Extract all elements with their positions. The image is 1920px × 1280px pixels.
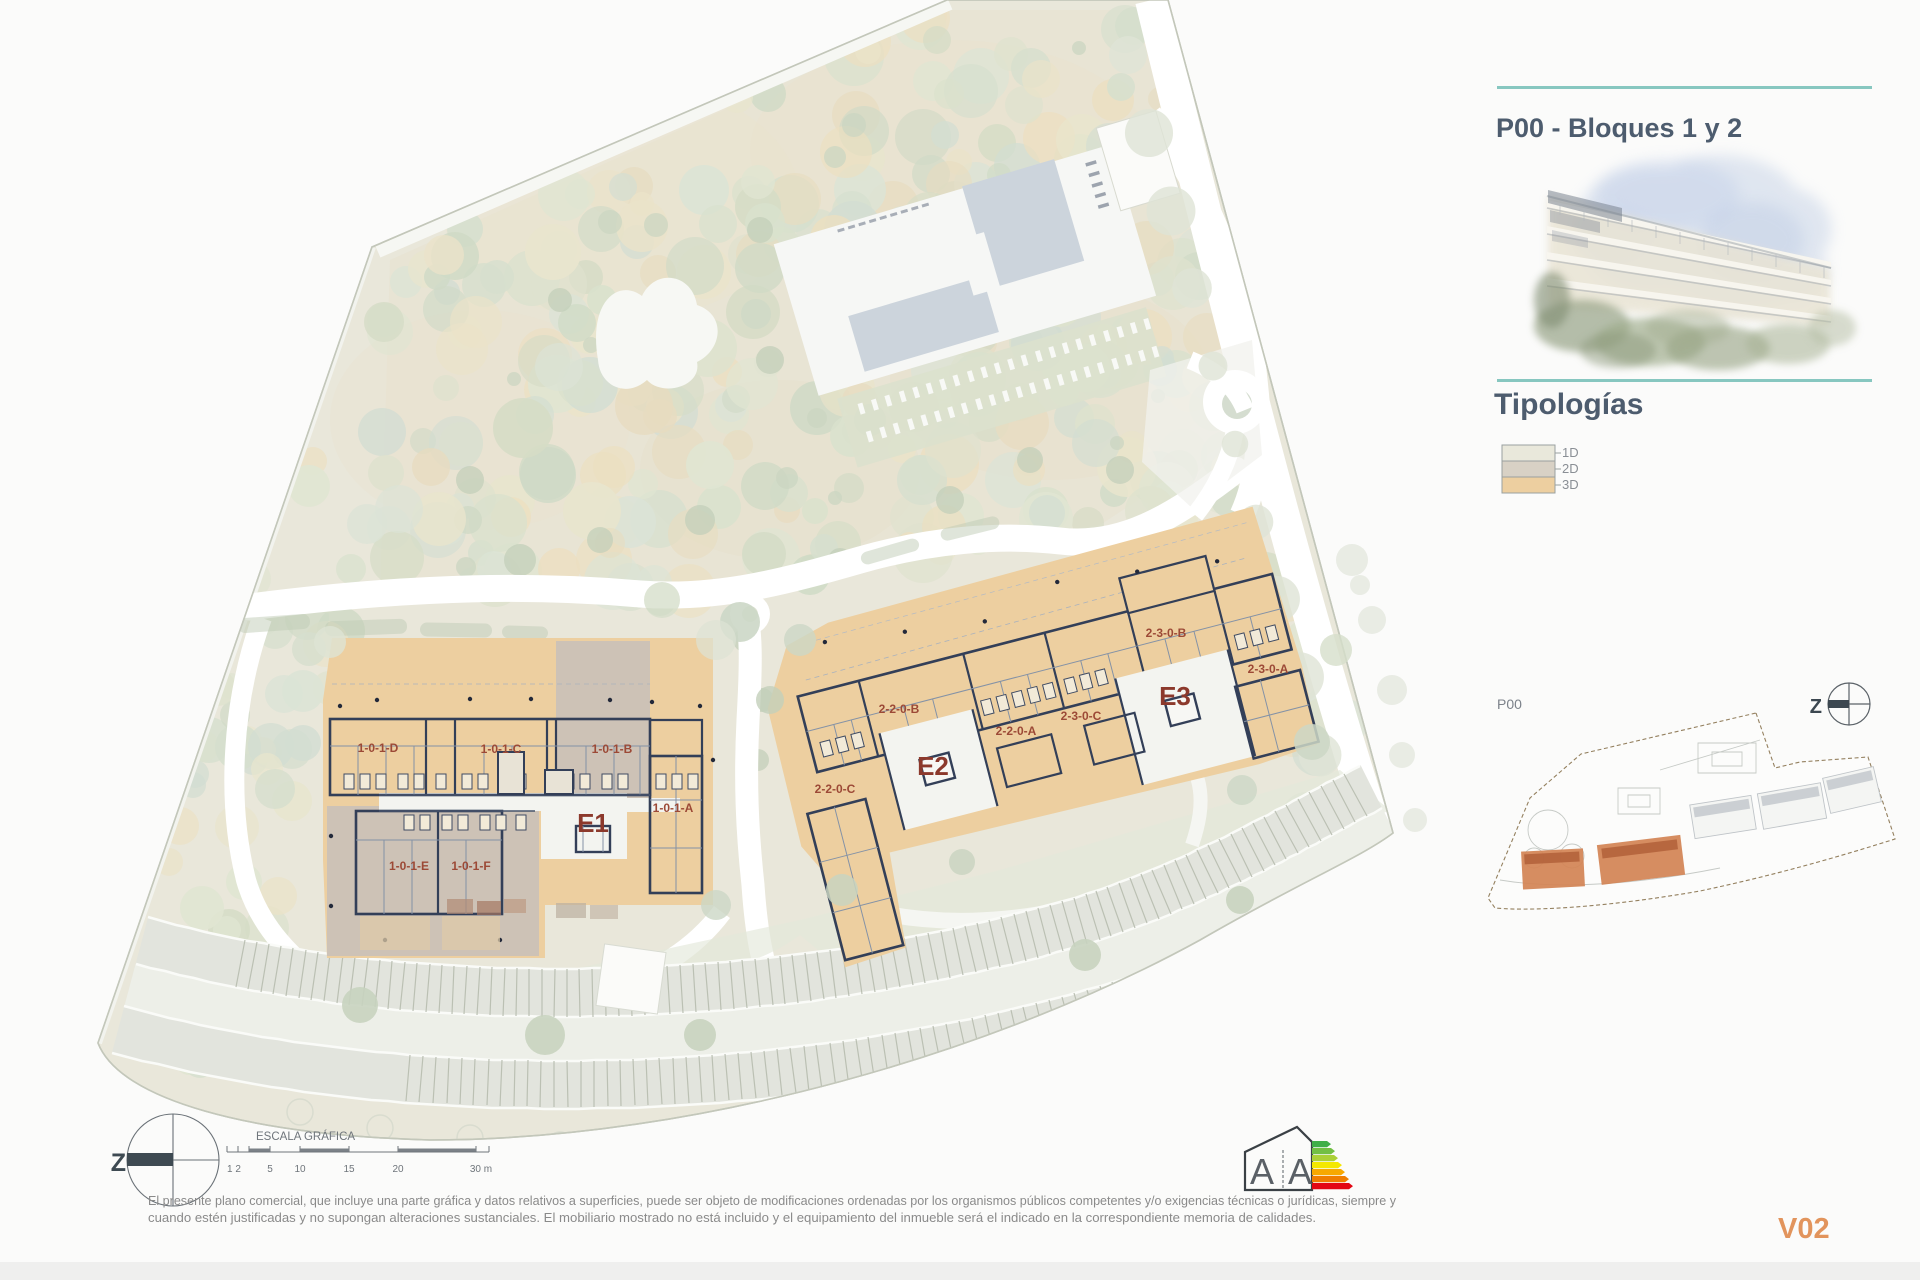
svg-text:1D: 1D <box>1562 445 1579 460</box>
svg-text:3D: 3D <box>1562 477 1579 492</box>
svg-text:E1: E1 <box>577 808 609 838</box>
svg-text:2D: 2D <box>1562 461 1579 476</box>
svg-text:E2: E2 <box>917 751 949 781</box>
svg-text:P00: P00 <box>1497 696 1522 712</box>
svg-text:1-0-1-F: 1-0-1-F <box>451 859 490 873</box>
svg-text:ESCALA GRÁFICA: ESCALA GRÁFICA <box>256 1130 355 1143</box>
svg-text:2-3-0-C: 2-3-0-C <box>1061 709 1102 723</box>
svg-text:5: 5 <box>267 1164 273 1175</box>
svg-text:E3: E3 <box>1159 681 1191 711</box>
svg-text:Z: Z <box>111 1149 126 1177</box>
svg-text:P00 - Bloques 1 y 2: P00 - Bloques 1 y 2 <box>1496 113 1742 143</box>
svg-text:A: A <box>1250 1151 1274 1192</box>
svg-text:2-2-0-C: 2-2-0-C <box>815 782 856 796</box>
svg-text:2-2-0-B: 2-2-0-B <box>879 702 920 716</box>
svg-text:15: 15 <box>343 1164 355 1175</box>
svg-text:1-0-1-A: 1-0-1-A <box>653 801 694 815</box>
svg-text:20: 20 <box>392 1164 404 1175</box>
svg-text:cuando estén justificadas y no: cuando estén justificadas y no supongan … <box>148 1211 1316 1225</box>
svg-text:1-0-1-D: 1-0-1-D <box>358 741 399 755</box>
svg-text:1 2: 1 2 <box>227 1164 241 1175</box>
svg-text:V02: V02 <box>1778 1213 1830 1245</box>
svg-text:10: 10 <box>294 1164 306 1175</box>
svg-text:A: A <box>1288 1151 1312 1192</box>
svg-text:1-0-1-C: 1-0-1-C <box>481 742 522 756</box>
svg-text:El presente plano comercial, q: El presente plano comercial, que incluye… <box>148 1194 1397 1208</box>
svg-text:30 m: 30 m <box>470 1164 492 1175</box>
svg-text:1-0-1-E: 1-0-1-E <box>389 859 429 873</box>
svg-text:1-0-1-B: 1-0-1-B <box>592 742 633 756</box>
svg-text:2-3-0-B: 2-3-0-B <box>1146 626 1187 640</box>
svg-text:2-3-0-A: 2-3-0-A <box>1248 662 1289 676</box>
svg-text:Tipologías: Tipologías <box>1494 388 1643 421</box>
svg-text:2-2-0-A: 2-2-0-A <box>996 724 1037 738</box>
svg-text:Z: Z <box>1810 696 1822 718</box>
